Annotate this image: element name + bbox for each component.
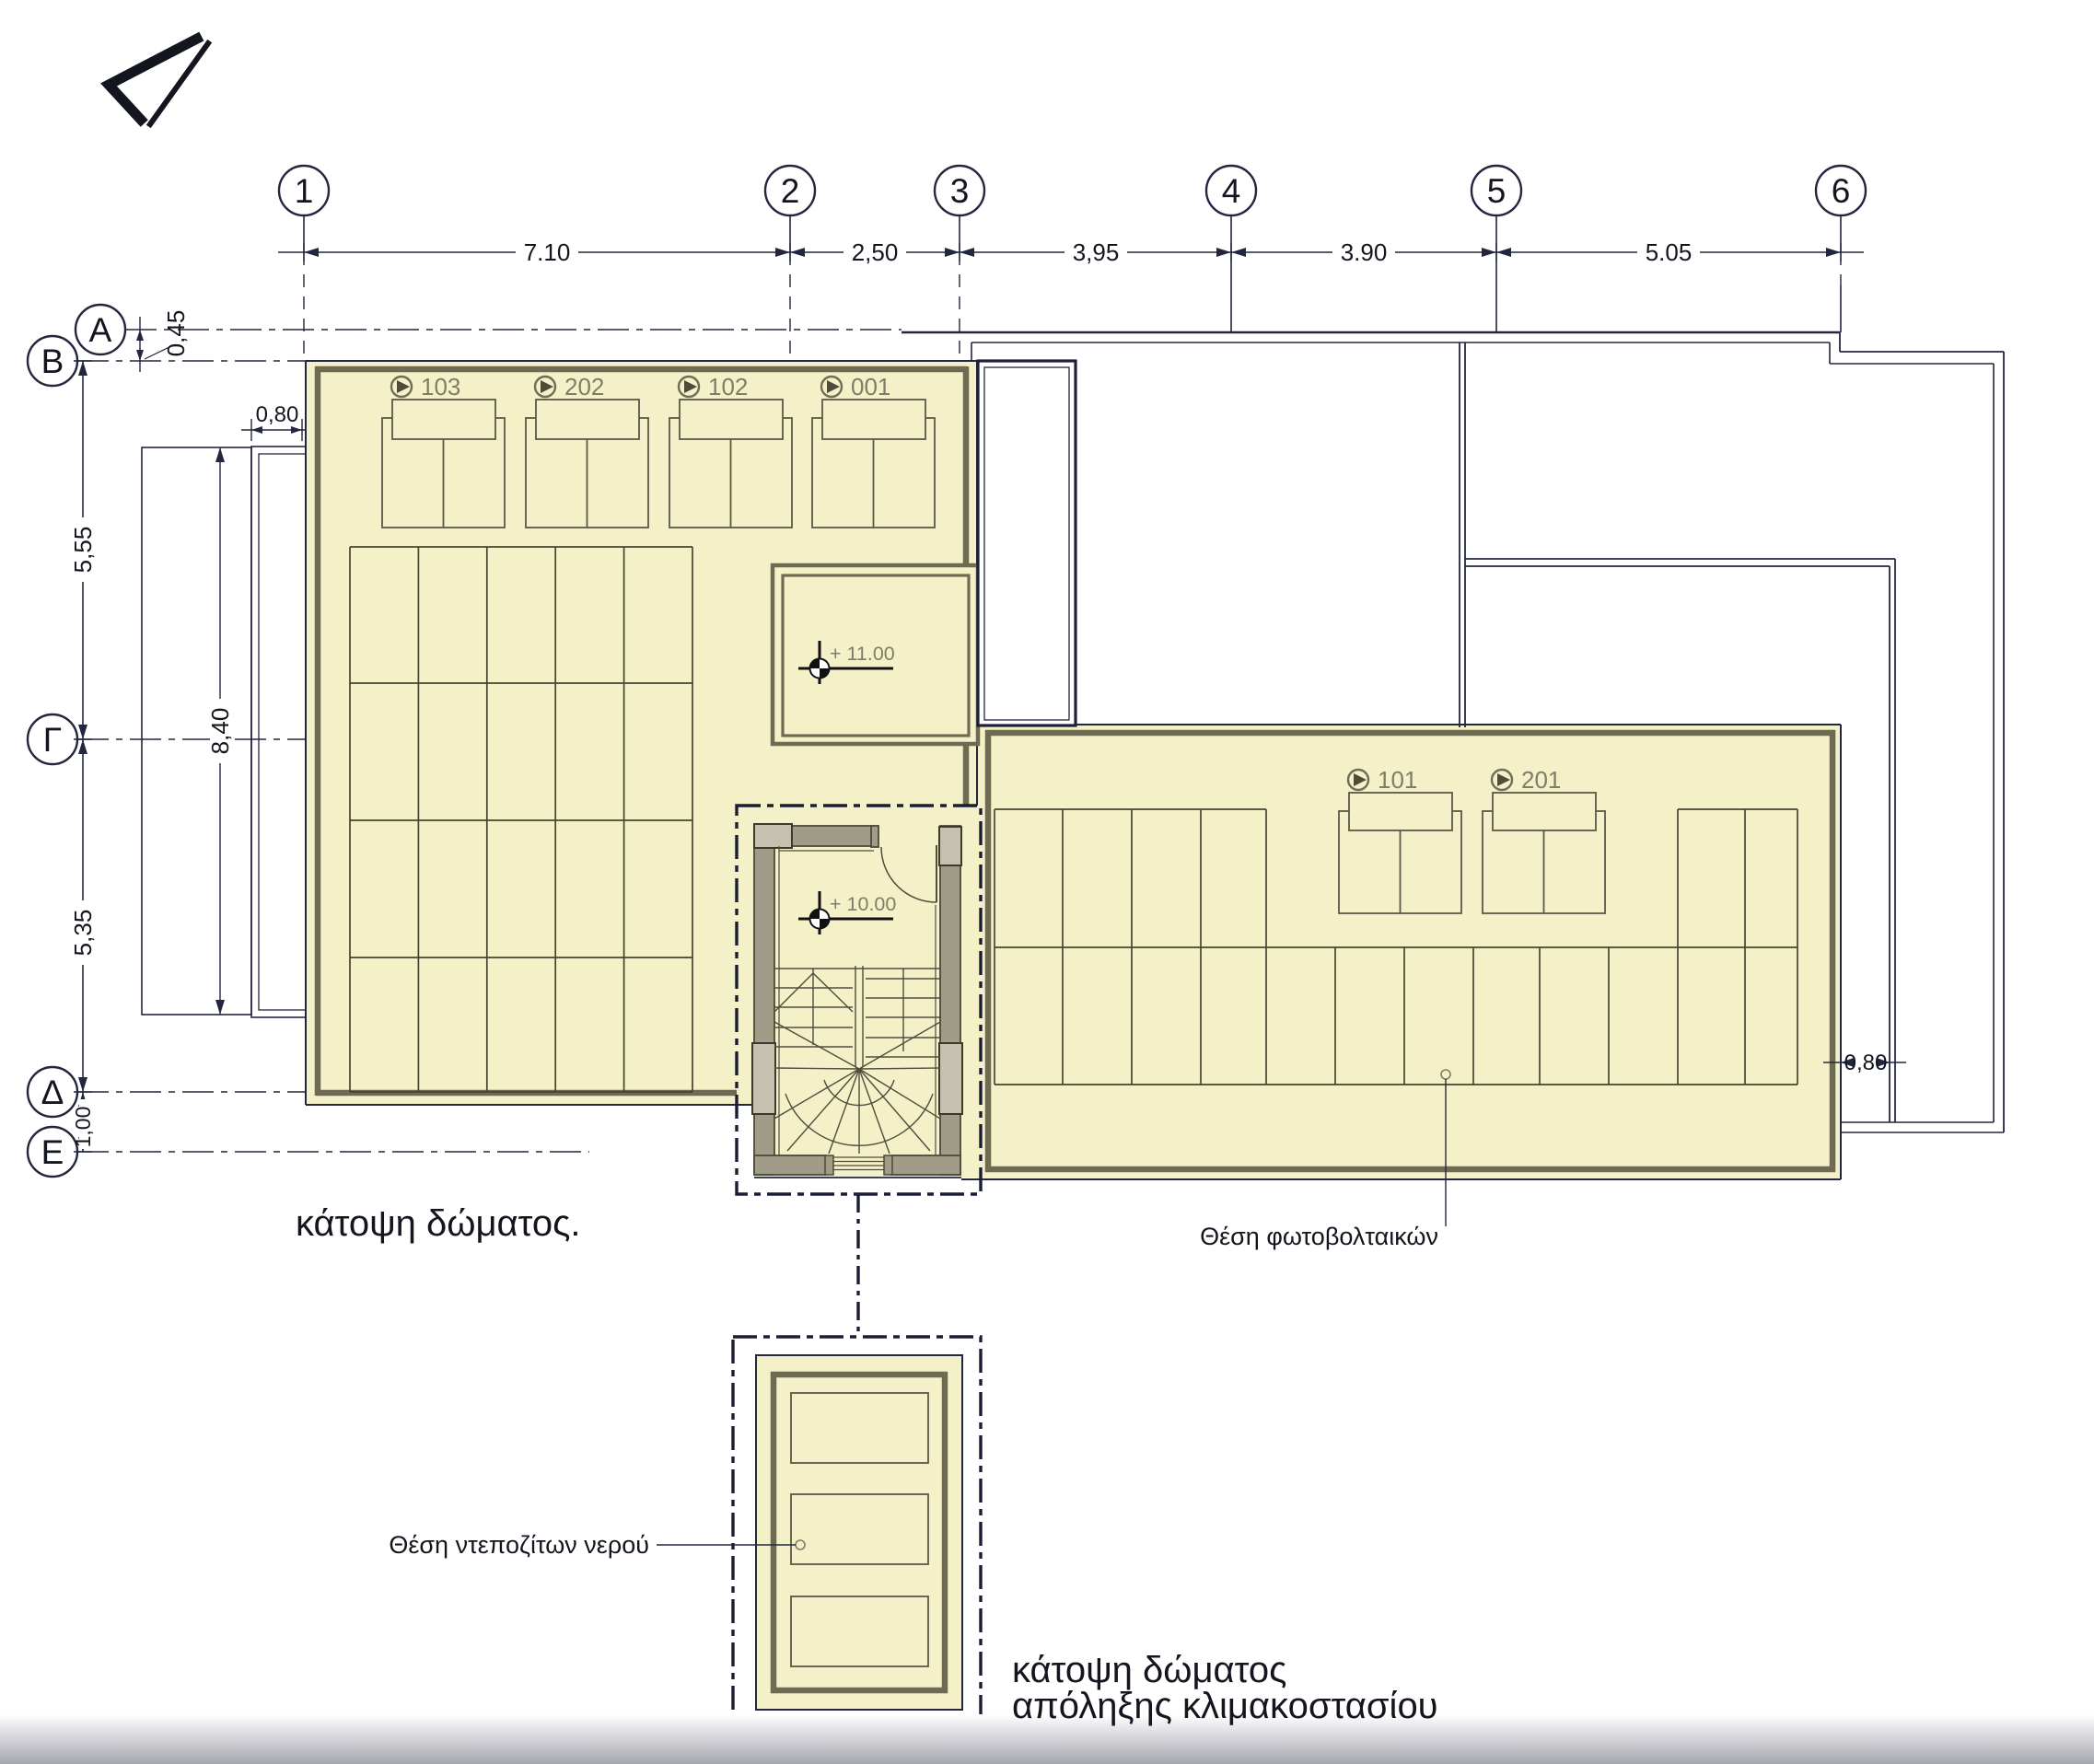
svg-text:5.05: 5.05 (1646, 238, 1693, 266)
svg-text:3.90: 3.90 (1341, 238, 1388, 266)
svg-text:3,95: 3,95 (1073, 238, 1120, 266)
svg-text:απόληξης κλιμακοστασίου: απόληξης κλιμακοστασίου (1012, 1686, 1438, 1726)
svg-text:Δ: Δ (41, 1073, 64, 1111)
svg-text:201: 201 (1521, 766, 1561, 794)
svg-text:0,45: 0,45 (162, 310, 190, 357)
svg-text:κάτοψη δώματος.: κάτοψη δώματος. (296, 1203, 581, 1244)
svg-text:E: E (41, 1133, 64, 1171)
svg-text:Γ: Γ (43, 721, 62, 759)
svg-text:+ 11.00: + 11.00 (830, 643, 895, 665)
svg-text:+ 10.00: + 10.00 (830, 893, 896, 915)
svg-text:5,55: 5,55 (69, 527, 97, 574)
svg-text:202: 202 (564, 373, 604, 400)
svg-text:4: 4 (1222, 172, 1241, 210)
svg-text:102: 102 (708, 373, 748, 400)
svg-text:1,00: 1,00 (71, 1107, 95, 1148)
svg-text:0,80: 0,80 (1844, 1050, 1888, 1075)
svg-text:B: B (41, 342, 64, 380)
svg-text:Θέση ντεποζίτων νερού: Θέση ντεποζίτων νερού (389, 1531, 649, 1559)
svg-text:2: 2 (781, 172, 800, 210)
svg-text:5,35: 5,35 (69, 910, 97, 957)
svg-text:Θέση φωτοβολταικών: Θέση φωτοβολταικών (1200, 1223, 1438, 1250)
svg-text:κάτοψη δώματος: κάτοψη δώματος (1012, 1650, 1286, 1690)
svg-text:101: 101 (1378, 766, 1417, 794)
svg-text:1: 1 (295, 172, 314, 210)
svg-text:8,40: 8,40 (206, 708, 234, 755)
svg-text:5: 5 (1487, 172, 1507, 210)
svg-text:6: 6 (1832, 172, 1851, 210)
svg-text:2,50: 2,50 (852, 238, 899, 266)
svg-text:3: 3 (950, 172, 970, 210)
svg-text:103: 103 (421, 373, 460, 400)
svg-text:7.10: 7.10 (524, 238, 571, 266)
svg-text:A: A (89, 311, 112, 349)
svg-text:001: 001 (851, 373, 890, 400)
svg-text:0,80: 0,80 (256, 402, 299, 427)
